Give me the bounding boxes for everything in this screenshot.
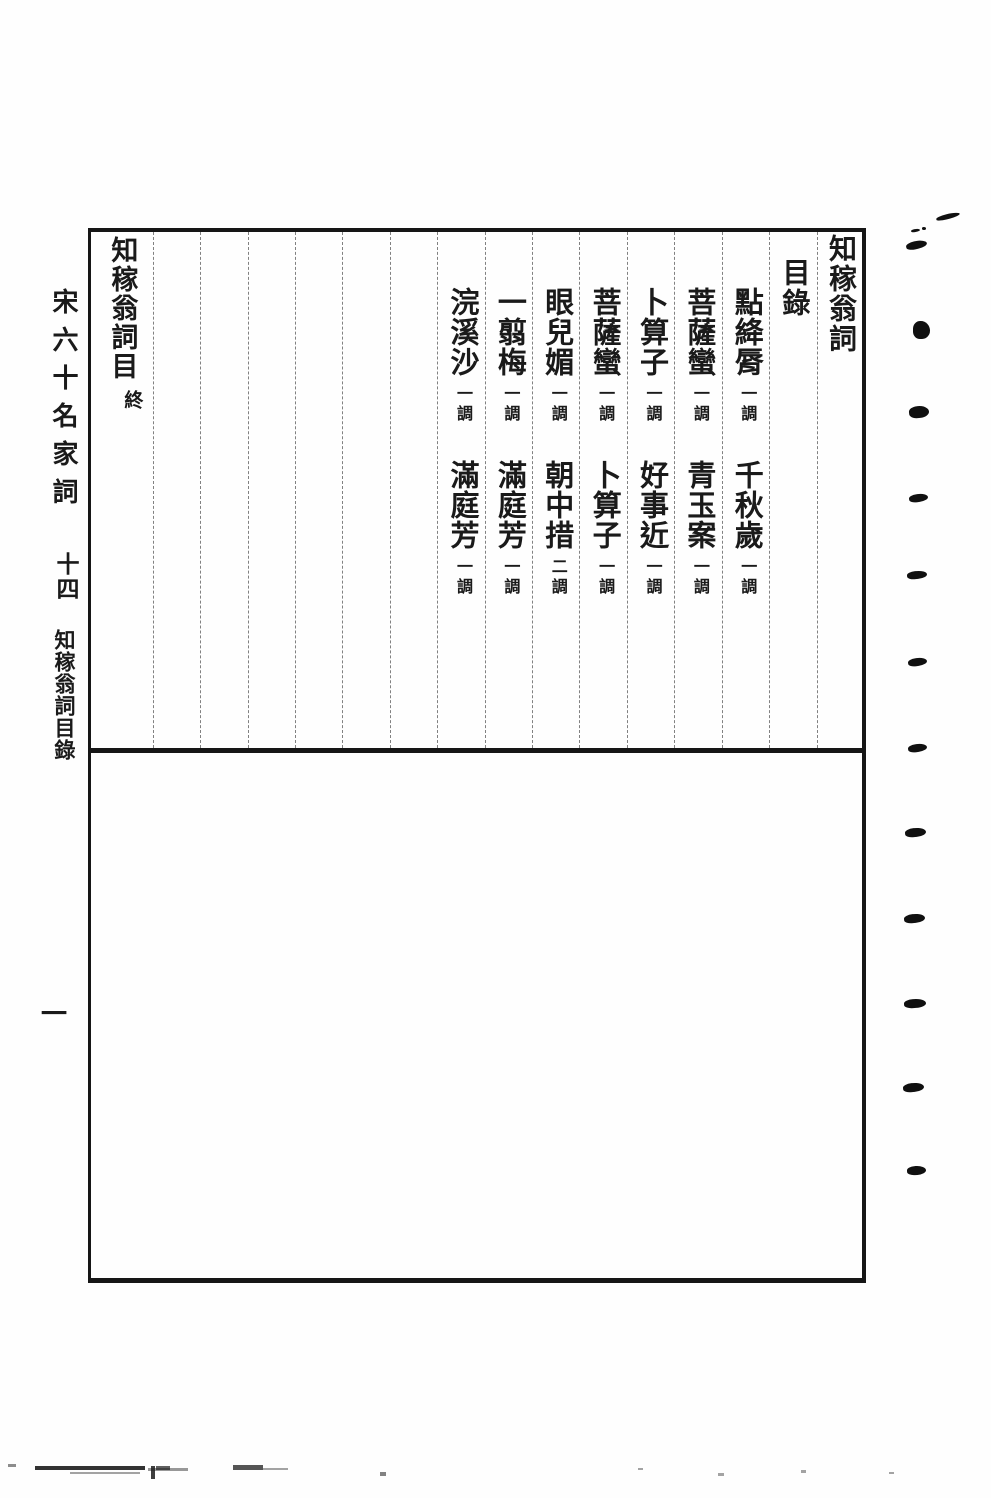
end-column: 知稼翁詞目終 [91,232,153,748]
tune-count: 一調 [644,550,661,598]
binding-mark [908,405,929,419]
book-title: 知稼翁詞 [826,234,854,354]
tune-count: 一調 [501,550,518,598]
toc-entry: 朝中措二調 [542,460,571,598]
toc-entry-column: 點絳脣一調千秋歲一調 [722,232,769,748]
toc-entry-column: 卜算子一調好事近一調 [627,232,674,748]
tune-count: 一調 [691,377,708,425]
tune-name: 菩薩蠻 [588,287,620,377]
toc-entry: 卜算子一調 [589,460,618,598]
tune-name: 卜算子 [588,460,620,550]
tune-name: 滿庭芳 [493,460,525,550]
tune-count: 一調 [501,377,518,425]
scan-speck [35,1466,145,1470]
tune-name: 一翦梅 [493,287,525,377]
toc-entry: 眼兒媚一調 [542,287,571,425]
end-mark: 終 [122,381,141,409]
scan-speck [70,1472,140,1474]
series-title: 宋六十名家詞 [50,288,76,516]
tune-count: 一調 [596,550,613,598]
tune-count: 一調 [454,550,471,598]
empty-lower-half [91,753,862,1278]
empty-column [390,232,437,748]
toc-entry: 千秋歲一調 [731,460,760,598]
text-frame: 知稼翁詞目錄點絳脣一調千秋歲一調菩薩蠻一調青玉案一調卜算子一調好事近一調菩薩蠻一… [88,228,866,1283]
binding-mark [936,211,960,222]
binding-mark [903,1082,925,1093]
tune-count: 一調 [596,377,613,425]
toc-entry: 一翦梅一調 [494,287,523,425]
scan-speck [156,1466,170,1470]
toc-entry: 卜算子一調 [637,287,666,425]
toc-entry: 菩薩蠻一調 [684,287,713,425]
binding-mark [904,998,927,1009]
toc-entry: 菩薩蠻一調 [589,287,618,425]
binding-mark [908,743,928,754]
tune-count: 一調 [738,377,755,425]
scan-speck [8,1464,16,1467]
toc-entry: 好事近一調 [637,460,666,598]
scan-speck [151,1466,155,1479]
toc-entry: 浣溪沙一調 [447,287,476,425]
tune-name: 卜算子 [636,287,668,377]
binding-mark [907,570,928,580]
scan-speck [263,1468,288,1470]
binding-mark [913,321,930,339]
empty-column [295,232,342,748]
toc-entry-column: 眼兒媚一調朝中措二調 [532,232,579,748]
toc-columns: 知稼翁詞目錄點絳脣一調千秋歲一調菩薩蠻一調青玉案一調卜算子一調好事近一調菩薩蠻一… [91,232,862,753]
toc-entry: 滿庭芳一調 [494,460,523,598]
toc-entry-column: 一翦梅一調滿庭芳一調 [485,232,532,748]
scan-speck [801,1470,806,1473]
tune-count: 一調 [644,377,661,425]
toc-heading-column: 目錄 [769,232,817,748]
binding-mark [908,657,928,668]
scan-speck [718,1473,724,1476]
toc-entry-column: 菩薩蠻一調青玉案一調 [674,232,721,748]
page-number: 一 [41,994,67,1031]
tune-count: 一調 [454,377,471,425]
toc-entry-column: 浣溪沙一調滿庭芳一調 [437,232,484,748]
title-column: 知稼翁詞 [817,232,862,748]
scan-speck [233,1465,263,1470]
toc-entry: 滿庭芳一調 [447,460,476,598]
toc-entry-column: 菩薩蠻一調卜算子一調 [579,232,626,748]
binding-mark [909,493,929,504]
end-column-title: 知稼翁詞目 [107,236,137,381]
scan-speck [380,1472,386,1476]
tune-name: 浣溪沙 [446,287,478,377]
empty-column [342,232,389,748]
toc-heading: 目錄 [780,258,808,318]
binding-mark [911,228,920,233]
tune-count: 一調 [549,377,566,425]
empty-column [153,232,200,748]
toc-entry: 點絳脣一調 [731,287,760,425]
tune-name: 菩薩蠻 [683,287,715,377]
volume-number: 十四 [54,552,77,602]
binding-mark [922,227,926,230]
tune-count: 一調 [738,550,755,598]
scan-speck [638,1468,643,1470]
empty-column [200,232,247,748]
end-column-text: 知稼翁詞目終 [108,236,135,409]
binding-mark [905,239,927,251]
tune-name: 點絳脣 [730,287,762,377]
binding-mark [904,913,926,924]
tune-count: 二調 [549,550,566,598]
empty-column [248,232,295,748]
tune-name: 朝中措 [541,460,573,550]
scan-speck [889,1472,894,1474]
binding-mark [907,1165,927,1175]
tune-name: 滿庭芳 [446,460,478,550]
tune-count: 一調 [691,550,708,598]
tune-name: 眼兒媚 [541,287,573,377]
toc-entry: 青玉案一調 [684,460,713,598]
binding-mark [905,827,927,838]
section-title: 知稼翁詞目錄 [53,629,74,761]
scanned-book-page: 宋六十名家詞 十四 知稼翁詞目錄 一 知稼翁詞目錄點絳脣一調千秋歲一調菩薩蠻一調… [0,0,991,1498]
tune-name: 好事近 [636,460,668,550]
tune-name: 千秋歲 [730,460,762,550]
tune-name: 青玉案 [683,460,715,550]
